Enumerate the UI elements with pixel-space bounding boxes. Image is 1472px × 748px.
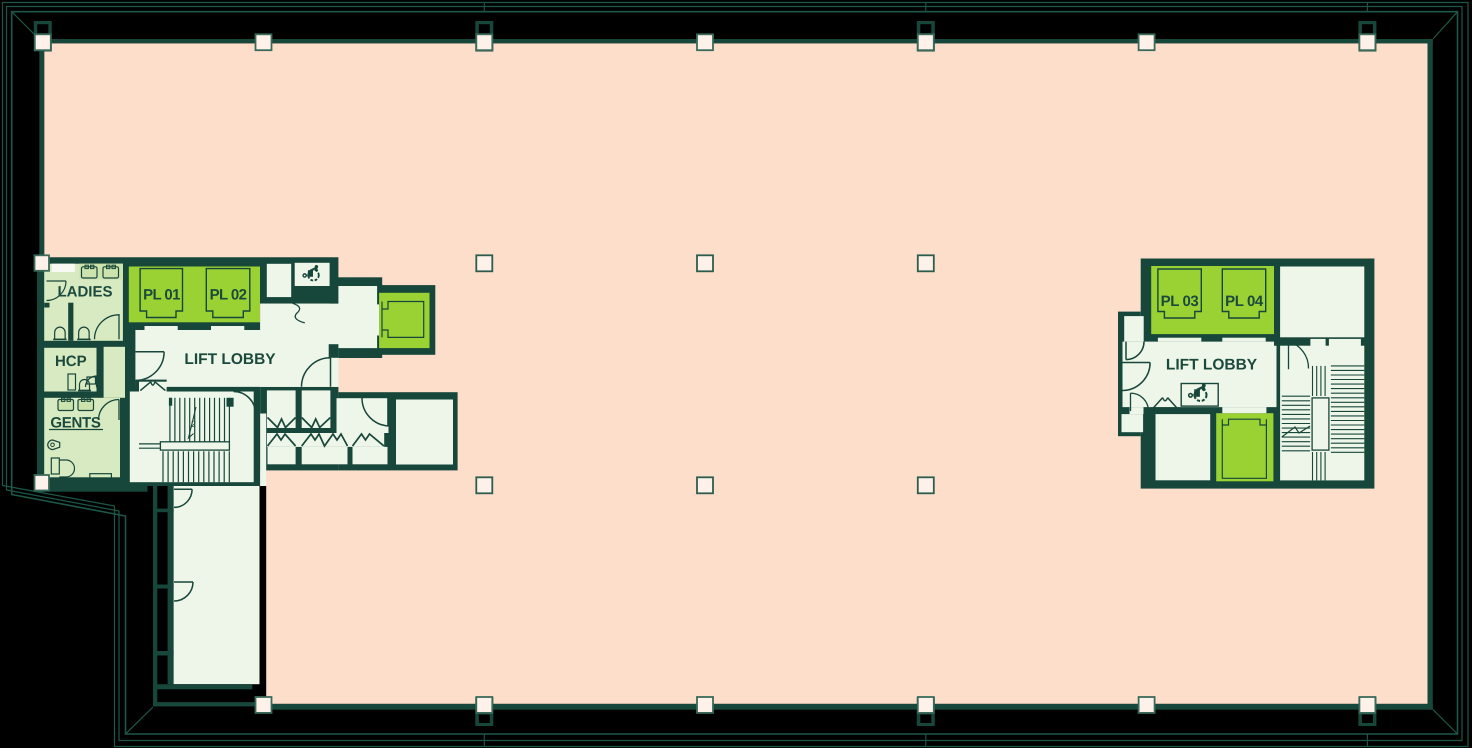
svg-text:HCP: HCP: [55, 353, 87, 370]
svg-text:LADIES: LADIES: [57, 284, 112, 301]
svg-text:PL 03: PL 03: [1161, 293, 1199, 310]
svg-text:PL 01: PL 01: [143, 286, 180, 303]
svg-text:LIFT LOBBY: LIFT LOBBY: [184, 351, 276, 368]
svg-text:PL 04: PL 04: [1225, 293, 1264, 310]
svg-text:LIFT LOBBY: LIFT LOBBY: [1166, 357, 1258, 374]
svg-text:GENTS: GENTS: [50, 415, 100, 432]
svg-text:PL 02: PL 02: [210, 286, 247, 303]
svg-text:2: 2: [191, 419, 196, 429]
